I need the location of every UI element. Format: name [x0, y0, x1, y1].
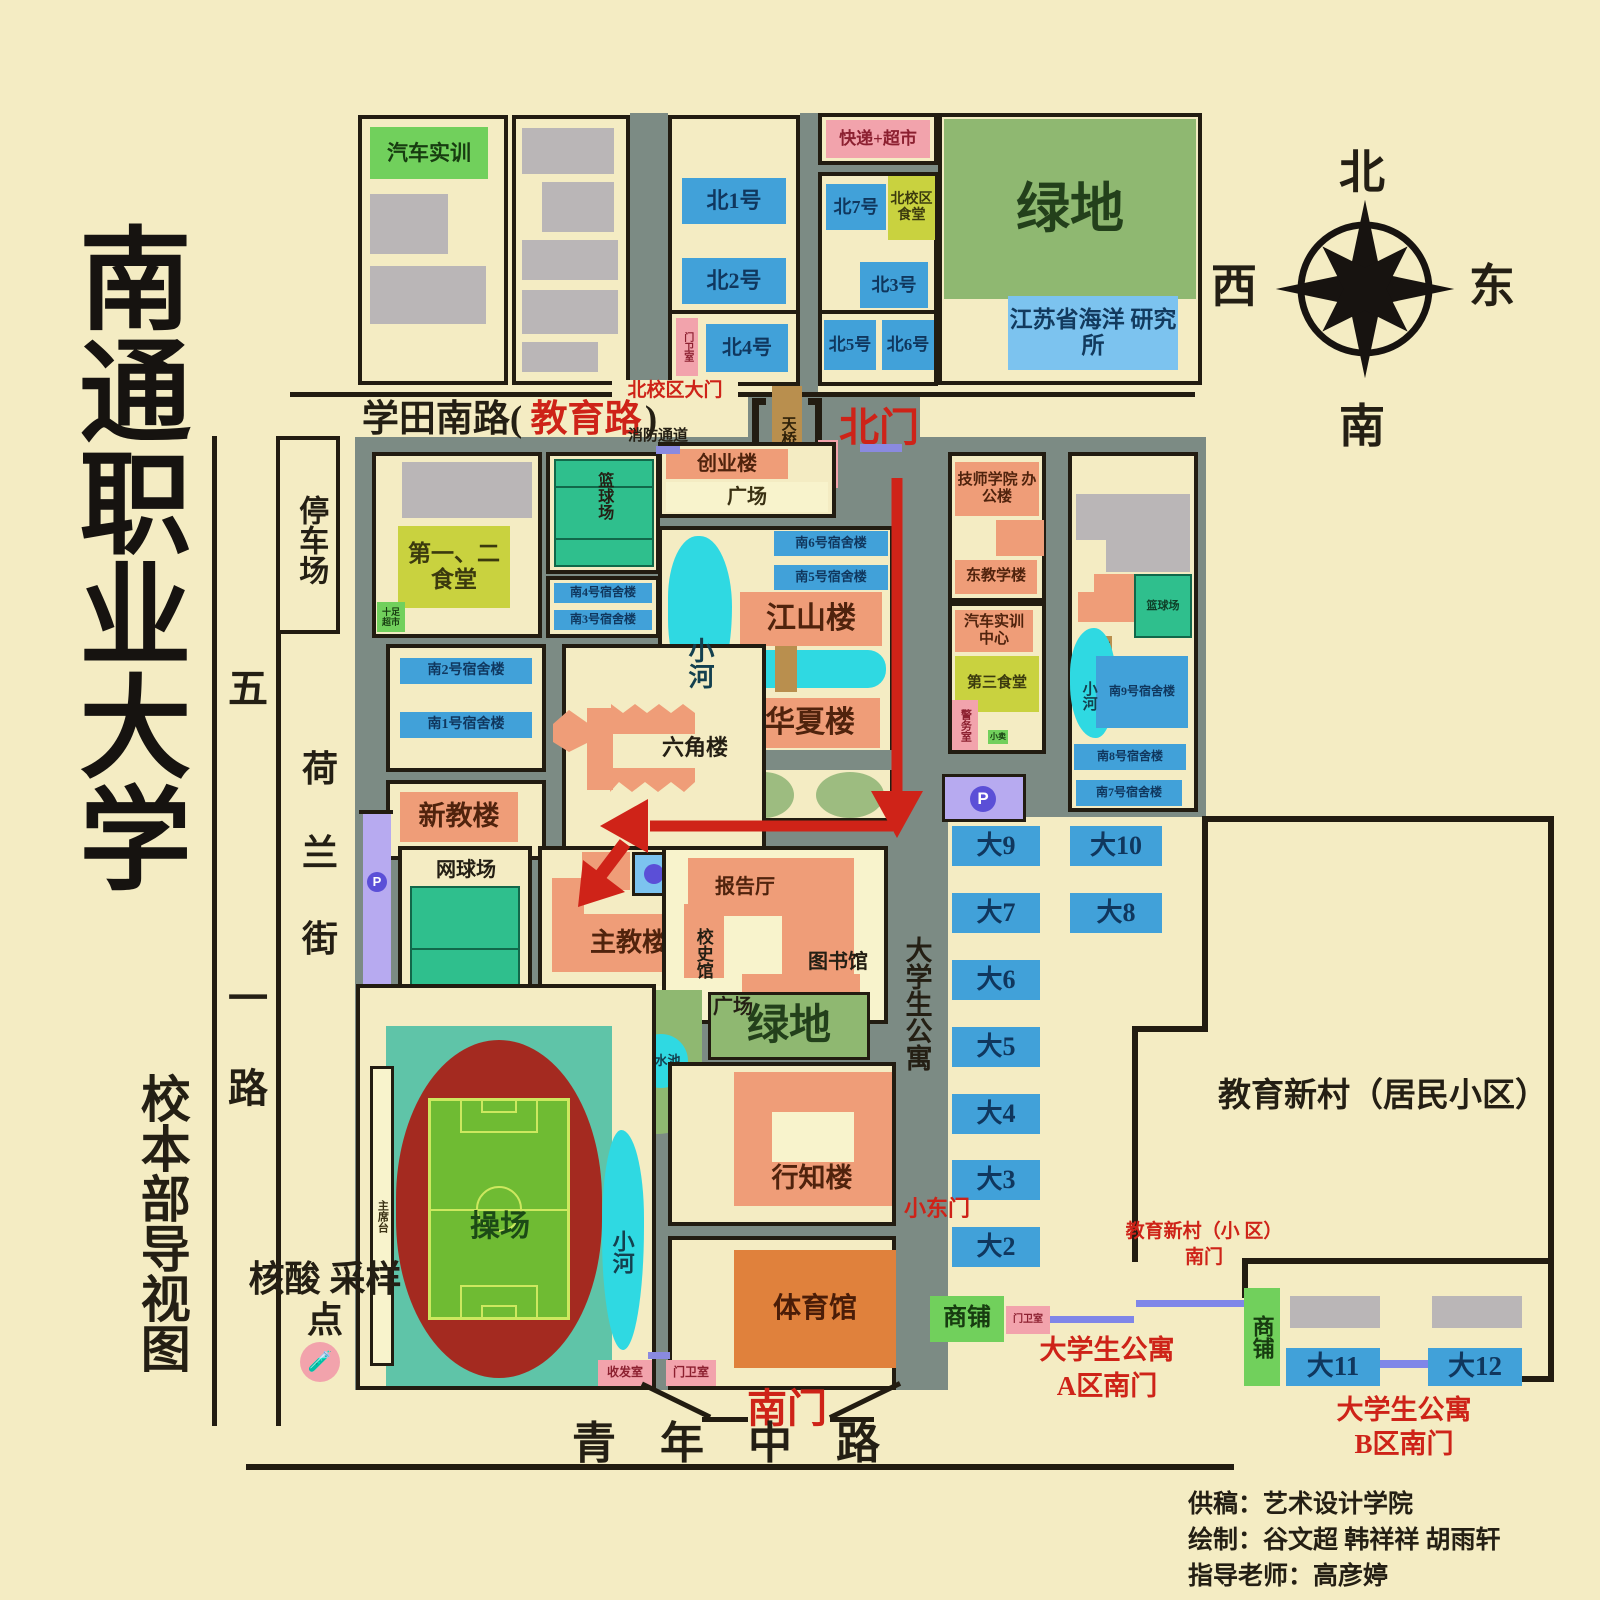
label-xingzhi-label: 行知楼: [772, 1163, 853, 1194]
credit-drawing: 绘制：谷文超 韩祥祥 胡雨轩: [1188, 1526, 1588, 1556]
guard-room-south-label: 门卫室: [673, 1366, 709, 1380]
apartment-da8: 大8: [1070, 893, 1162, 933]
plaza-startup: 广场: [666, 482, 828, 512]
credit-advisor-label: 指导老师：高彦婷: [1188, 1563, 1388, 1592]
shops-a: 商铺: [930, 1296, 1004, 1342]
building-north-canteen-label: 北校区食堂: [888, 192, 935, 224]
building-shizu-market-label: 十足 超市: [377, 607, 405, 628]
dorm-south-9: 南9号宿舍楼: [1096, 656, 1188, 728]
map-subtitle: 校本部导视图: [128, 1038, 194, 1408]
label-education-village: 教育新村（居民小区）: [1210, 1076, 1556, 1118]
plaza-startup-label: 广场: [727, 486, 767, 509]
gate-strip-fire-lane: [656, 446, 680, 454]
dorm-north-5: 北5号: [824, 320, 876, 370]
dorm-north-2-label: 北2号: [706, 268, 761, 293]
label-village-gate-1: 教育新村（小 区）: [1122, 1220, 1286, 1244]
lawn-north-label: 绿地: [1016, 178, 1124, 240]
dorm-south-4: 南4号宿舍楼: [554, 583, 652, 603]
building-gray: [1106, 540, 1190, 572]
shops-b-label: 商铺: [1249, 1315, 1274, 1359]
building-main-teaching-label: 主教楼: [590, 928, 668, 958]
map-title-calligraphy-label: 南通职业大学: [60, 221, 189, 893]
guard-room-north-4: 门卫室: [676, 318, 698, 376]
label-library-label: 图书馆: [808, 951, 868, 974]
court-basketball-north-cell: [588, 538, 620, 540]
road-north-2: [800, 113, 818, 395]
apartment-da9: 大9: [952, 826, 1040, 866]
wall-seg-right: [830, 1417, 874, 1422]
building-gray: [522, 240, 618, 280]
label-wuyi-3-label: 路: [228, 1066, 268, 1112]
dorm-north-2: 北2号: [682, 258, 786, 304]
compass-icon: [1268, 192, 1462, 386]
label-river-west-label: 小河: [684, 637, 714, 689]
label-hexagon-label: 六角楼: [662, 735, 728, 760]
compass-label-west: 西: [1208, 260, 1260, 314]
dorm-north-4-label: 北4号: [722, 337, 772, 360]
label-tennis: 网球场: [426, 858, 506, 882]
shops-b: 商铺: [1244, 1288, 1280, 1386]
label-basketball-north: 篮球场: [592, 466, 614, 526]
label-river-southwest-label: 小河: [609, 1230, 634, 1274]
dorm-north-6-label: 北6号: [887, 335, 930, 355]
building-east-teaching-label: 东教学楼: [966, 568, 1026, 585]
wall-village-left-1: [1202, 816, 1208, 1032]
wall-village-top: [1202, 816, 1554, 822]
compass-label-east-label: 东: [1469, 261, 1515, 314]
court-tennis-cell: [412, 948, 465, 950]
dorm-south-7: 南7号宿舍楼: [1076, 780, 1182, 806]
label-apartment-b-1-label: 大学生公寓: [1337, 1395, 1472, 1426]
building-east-teaching: 东教学楼: [955, 560, 1037, 594]
label-small-east-gate: 小东门: [896, 1196, 978, 1222]
building-xingzhi-court: [772, 1112, 854, 1162]
building-lecture-hall-label: 报告厅: [715, 876, 775, 899]
building-gym-label: 体育馆: [773, 1293, 857, 1325]
label-apartment-b-1: 大学生公寓: [1326, 1396, 1482, 1426]
label-helan-2-label: 兰: [302, 833, 338, 874]
building-tech-college: 技师学院 办公楼: [955, 462, 1039, 516]
dorm-north-7-label: 北7号: [834, 197, 879, 218]
building-gray: [370, 194, 448, 254]
lawn-oval-2: [816, 772, 884, 818]
label-xuetian-south-road-label: 学田南路(: [362, 399, 522, 442]
dorm-north-1-label: 北1号: [706, 188, 761, 213]
path-b: [1380, 1360, 1428, 1368]
label-wuyi-1-label: 五: [228, 666, 268, 712]
dorm-south-7-label: 南7号宿舍楼: [1096, 786, 1162, 800]
label-nucleic-acid: 核酸 采样点: [240, 1258, 410, 1342]
building-xinjiao-label: 新教楼: [419, 801, 500, 832]
guard-room-a: 门卫室: [1006, 1306, 1050, 1334]
compass-label-east: 东: [1466, 260, 1518, 314]
court-basketball-east-label: 篮球场: [1147, 600, 1180, 613]
apartment-da11: 大11: [1286, 1348, 1380, 1386]
building-gray: [522, 342, 598, 372]
label-helan-2: 兰: [298, 832, 342, 876]
wall-b-top: [1242, 1258, 1554, 1264]
label-wuyi-2: 一: [226, 976, 270, 1022]
dorm-south-8: 南8号宿舍楼: [1074, 744, 1186, 770]
dorm-south-5: 南5号宿舍楼: [774, 565, 888, 590]
map-title-calligraphy: 南通职业大学: [48, 142, 200, 972]
building-startup: 创业楼: [666, 449, 788, 479]
label-plaza-library-label: 广场: [713, 996, 753, 1019]
compass-label-west-label: 西: [1211, 261, 1257, 314]
pitch-goal-box-top: [481, 1099, 517, 1113]
parking-icon-east-label: P: [977, 789, 988, 809]
building-jiangshan: 江山楼: [740, 592, 882, 646]
apartment-da5: 大5: [952, 1027, 1040, 1067]
label-village-gate-2-label: 南门: [1185, 1247, 1223, 1269]
court-basketball-north-cell: [556, 538, 588, 540]
building-auto-center: 汽车实训 中心: [955, 610, 1033, 652]
credit-drawing-label: 绘制：谷文超 韩祥祥 胡雨轩: [1188, 1527, 1501, 1556]
label-apartment-a-1-label: 大学生公寓: [1040, 1335, 1175, 1366]
gate-strip-south: [648, 1352, 670, 1359]
label-village-gate-1-label: 教育新村（小 区）: [1126, 1221, 1283, 1243]
label-river-southwest: 小河: [608, 1214, 636, 1290]
campus-map: 汽车实训北1号北2号门卫室北4号快递+超市北7号北校区食堂北3号北5号北6号绿地…: [0, 0, 1600, 1600]
label-helan-3-label: 街: [302, 919, 338, 960]
map-subtitle-label: 校本部导视图: [132, 1073, 190, 1373]
building-gray: [402, 462, 532, 518]
pitch-goal-box-bottom: [481, 1305, 517, 1319]
dorm-south-8-label: 南8号宿舍楼: [1097, 750, 1163, 764]
label-plaza-library: 广场: [700, 994, 766, 1020]
police-room: 警务室: [952, 700, 978, 750]
apartment-da7-label: 大7: [976, 898, 1015, 928]
label-qingnian-road-label: 青年中路: [572, 1419, 924, 1470]
dorm-north-3: 北3号: [860, 262, 928, 308]
label-river-east-label: 小河: [1079, 681, 1096, 711]
label-wuyi-3: 路: [226, 1066, 270, 1112]
building-kiosk-label: 小卖: [990, 732, 1006, 741]
apartment-da7: 大7: [952, 893, 1040, 933]
gate-strip-north: [860, 444, 902, 452]
building-orange-deco: [1094, 574, 1136, 596]
south-road-line: [246, 1464, 1234, 1470]
parking-icon-east: P: [970, 786, 996, 812]
apartment-da10-label: 大10: [1090, 831, 1142, 861]
label-apartment-b-2-label: B区南门: [1354, 1429, 1453, 1460]
dorm-south-4-label: 南4号宿舍楼: [570, 586, 636, 600]
apartment-da4-label: 大4: [976, 1099, 1015, 1129]
credit-source: 供稿：艺术设计学院: [1188, 1490, 1548, 1520]
building-startup-label: 创业楼: [697, 453, 757, 476]
building-auto-center-label: 汽车实训 中心: [955, 614, 1033, 649]
wall-village-right: [1548, 816, 1554, 1266]
building-express-market: 快递+超市: [826, 120, 930, 158]
building-gray: [542, 182, 614, 232]
apartment-da12: 大12: [1428, 1348, 1522, 1386]
apartment-da6-label: 大6: [976, 965, 1015, 995]
building-gray: [1076, 494, 1190, 540]
dorm-north-4: 北4号: [706, 324, 788, 372]
court-basketball-north-cell: [620, 486, 652, 488]
court-basketball-north-cell: [620, 538, 652, 540]
building-gym: 体育馆: [734, 1250, 896, 1368]
building-jiangshan-label: 江山楼: [766, 602, 856, 637]
dorm-south-2: 南2号宿舍楼: [400, 658, 532, 684]
label-qingnian-road: 青年中路: [548, 1420, 948, 1468]
label-education-village-label: 教育新村（居民小区）: [1218, 1078, 1548, 1116]
dorm-north-6: 北6号: [882, 320, 934, 370]
apartment-da12-label: 大12: [1448, 1351, 1502, 1382]
building-canteen-1-2-label: 第一、二 食堂: [398, 541, 510, 594]
apartment-da10: 大10: [1070, 826, 1162, 866]
label-tennis-label: 网球场: [436, 859, 496, 882]
guard-room-a-label: 门卫室: [1013, 1314, 1043, 1326]
label-small-east-gate-label: 小东门: [904, 1196, 970, 1221]
building-canteen-1-2: 第一、二 食堂: [398, 526, 510, 608]
dorm-south-1-label: 南1号宿舍楼: [428, 717, 505, 733]
bridge-pond: [775, 646, 797, 692]
court-tennis-cell: [465, 948, 518, 950]
building-marine-institute: 江苏省海洋 研究所: [1008, 296, 1178, 370]
label-apartment-a-2-label: A区南门: [1057, 1371, 1158, 1402]
building-express-market-label: 快递+超市: [839, 129, 917, 149]
dorm-south-6-label: 南6号宿舍楼: [795, 536, 867, 551]
nucleic-acid-icon: 🧪: [300, 1342, 340, 1382]
building-kiosk: 小卖: [988, 730, 1008, 744]
building-tech-annex: [996, 520, 1044, 556]
dorm-north-5-label: 北5号: [829, 335, 872, 355]
label-river-east: 小河: [1076, 664, 1100, 728]
label-apartment-a-2: A区南门: [1046, 1372, 1168, 1402]
label-wuyi-1: 五: [226, 666, 270, 712]
building-gray: [1290, 1296, 1380, 1328]
road-west-line-1: [212, 436, 217, 1426]
label-basketball-north-label: 篮球场: [594, 472, 612, 520]
building-main-teach-wing: [582, 852, 630, 890]
lawn-north: 绿地: [944, 119, 1196, 299]
apartment-da11-label: 大11: [1307, 1351, 1360, 1382]
building-gray: [370, 266, 486, 324]
road-north-1: [630, 113, 668, 395]
nucleic-acid-icon-label: 🧪: [308, 1351, 333, 1374]
apartment-da5-label: 大5: [976, 1032, 1015, 1062]
wall-b-right: [1548, 1258, 1554, 1382]
label-library: 图书馆: [794, 948, 882, 976]
apartment-da4: 大4: [952, 1094, 1040, 1134]
compass-label-south-label: 南: [1339, 401, 1385, 454]
label-student-apartments-label: 大学生公寓: [900, 936, 931, 1071]
mail-room-label: 收发室: [607, 1366, 643, 1380]
label-helan-1: 荷: [298, 748, 342, 792]
dorm-south-1: 南1号宿舍楼: [400, 712, 532, 738]
label-hexagon: 六角楼: [648, 734, 742, 762]
dorm-south-2-label: 南2号宿舍楼: [428, 663, 505, 679]
building-north-canteen: 北校区食堂: [888, 176, 935, 240]
rostrum-label: 主席台: [376, 1200, 389, 1233]
court-basketball-east: 篮球场: [1134, 574, 1192, 638]
apartment-da2-label: 大2: [976, 1232, 1015, 1262]
label-history-hall-label: 校史馆: [693, 928, 713, 979]
shops-a-label: 商铺: [943, 1305, 991, 1333]
wall-village-step: [1132, 1026, 1208, 1032]
label-apartment-b-2: B区南门: [1338, 1430, 1470, 1460]
label-playground-label: 操场: [470, 1210, 530, 1245]
label-parking-west-label: 停车场: [293, 495, 328, 585]
label-student-apartments: 大学生公寓: [902, 838, 930, 1168]
feature-blue-dot: [644, 864, 664, 884]
label-parking-west: 停车场: [294, 470, 326, 610]
parking-cap-top: [359, 810, 393, 814]
building-shizu-market: 十足 超市: [377, 602, 405, 632]
guard-room-south: 门卫室: [666, 1360, 716, 1386]
label-nucleic-acid-label: 核酸 采样点: [240, 1259, 410, 1342]
label-river-west: 小河: [686, 620, 712, 706]
label-playground: 操场: [460, 1210, 540, 1244]
parking-icon-west: P: [367, 872, 387, 892]
police-room-label: 警务室: [959, 709, 972, 742]
dorm-north-3-label: 北3号: [872, 275, 917, 296]
wall-seg-left: [702, 1417, 748, 1422]
dorm-north-1: 北1号: [682, 178, 786, 224]
dorm-south-9-label: 南9号宿舍楼: [1109, 685, 1175, 699]
compass-label-north-label: 北: [1339, 147, 1385, 200]
compass-label-north: 北: [1336, 146, 1388, 200]
dorm-south-5-label: 南5号宿舍楼: [795, 570, 867, 585]
dorm-south-6: 南6号宿舍楼: [774, 531, 888, 556]
apartment-da3-label: 大3: [976, 1165, 1015, 1195]
label-village-gate-2: 南门: [1176, 1246, 1232, 1270]
apartment-da2: 大2: [952, 1227, 1040, 1267]
building-tech-college-label: 技师学院 办公楼: [955, 472, 1039, 507]
dorm-south-3-label: 南3号宿舍楼: [570, 613, 636, 627]
parking-icon-west-label: P: [373, 875, 382, 890]
label-history-hall: 校史馆: [690, 914, 716, 992]
guard-room-north-4-label: 门卫室: [681, 332, 693, 362]
building-auto-training: 汽车实训: [370, 127, 488, 179]
compass-label-south: 南: [1336, 400, 1388, 454]
building-gray: [522, 290, 618, 334]
building-huaxia-label: 华夏楼: [765, 706, 855, 741]
building-marine-institute-label: 江苏省海洋 研究所: [1008, 307, 1178, 360]
apartment-da3: 大3: [952, 1160, 1040, 1200]
building-gray: [1432, 1296, 1522, 1328]
dorm-north-7: 北7号: [826, 184, 886, 230]
label-xingzhi: 行知楼: [762, 1164, 862, 1194]
building-gray: [522, 128, 614, 174]
path-a: [1050, 1316, 1134, 1323]
apartment-da9-label: 大9: [976, 831, 1015, 861]
label-helan-1-label: 荷: [302, 749, 338, 790]
label-xuetian-south-road: 学田南路(: [352, 397, 532, 443]
apartment-da8-label: 大8: [1096, 898, 1135, 928]
building-auto-training-label: 汽车实训: [387, 141, 471, 165]
credit-source-label: 供稿：艺术设计学院: [1188, 1491, 1413, 1520]
building-canteen-3-label: 第三食堂: [967, 675, 1027, 692]
label-wuyi-2-label: 一: [228, 976, 268, 1022]
label-apartment-a-1: 大学生公寓: [1032, 1336, 1182, 1366]
building-xinjiao: 新教楼: [400, 792, 518, 842]
label-helan-3: 街: [298, 918, 342, 962]
dorm-south-3: 南3号宿舍楼: [554, 610, 652, 630]
building-orange-deco: [1078, 592, 1134, 622]
court-basketball-north-cell: [556, 486, 588, 488]
apartment-da6: 大6: [952, 960, 1040, 1000]
credit-advisor: 指导老师：高彦婷: [1188, 1562, 1548, 1592]
